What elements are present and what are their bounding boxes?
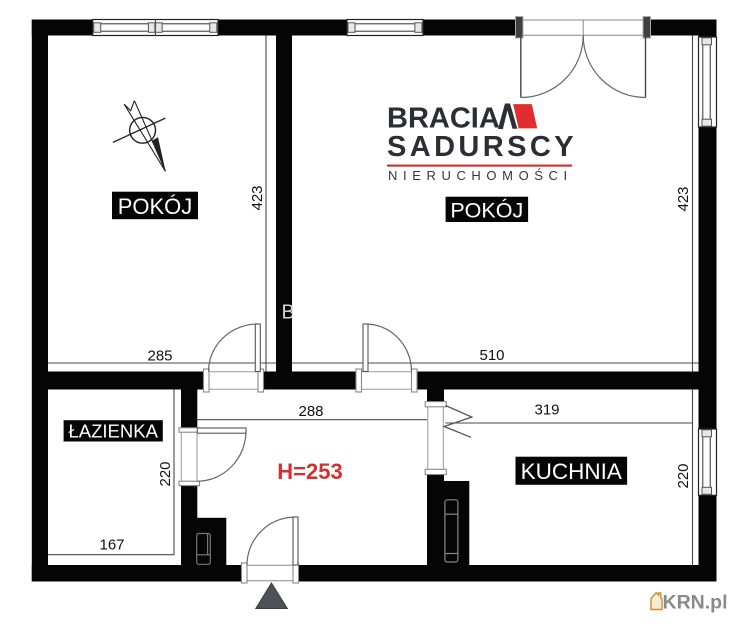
svg-text:285: 285: [147, 348, 172, 365]
svg-text:288: 288: [298, 403, 323, 420]
svg-text:423: 423: [675, 186, 692, 211]
svg-text:220: 220: [675, 463, 692, 488]
svg-text:ŁAZIENKA: ŁAZIENKA: [68, 420, 158, 441]
svg-text:KRN.pl: KRN.pl: [663, 592, 728, 614]
svg-text:167: 167: [99, 537, 124, 554]
svg-text:BRACIA: BRACIA: [387, 103, 500, 135]
svg-text:H=253: H=253: [277, 459, 342, 484]
svg-text:POKÓJ: POKÓJ: [118, 194, 193, 219]
svg-text:SADURSCY: SADURSCY: [387, 131, 577, 163]
svg-text:NIERUCHOMOŚCI: NIERUCHOMOŚCI: [388, 168, 573, 183]
svg-text:KUCHNIA: KUCHNIA: [521, 459, 622, 484]
svg-text:319: 319: [534, 402, 559, 419]
svg-text:POKÓJ: POKÓJ: [450, 198, 523, 223]
svg-text:510: 510: [479, 347, 504, 364]
svg-text:220: 220: [157, 461, 174, 486]
svg-text:423: 423: [249, 185, 266, 210]
